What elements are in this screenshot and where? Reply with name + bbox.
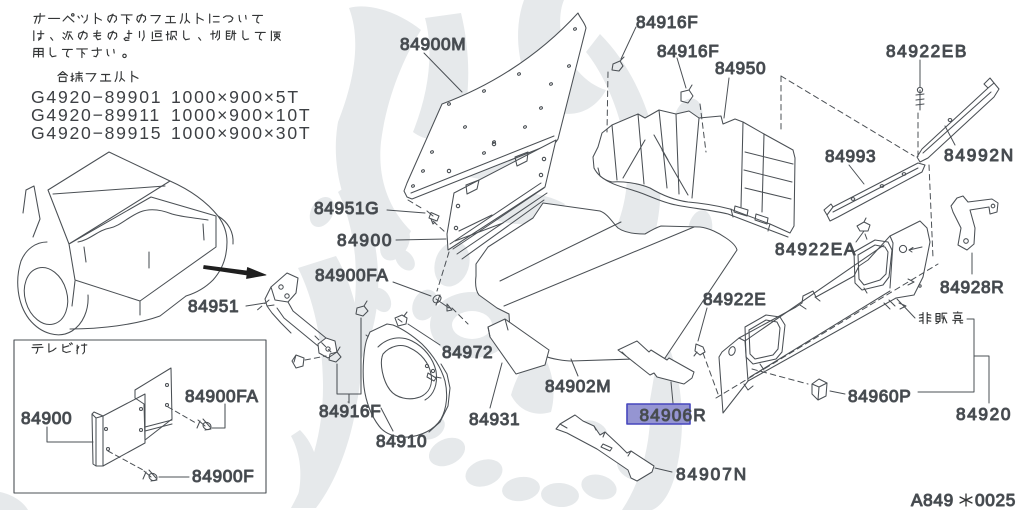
svg-text:84972: 84972: [442, 342, 493, 362]
svg-text:84900: 84900: [21, 408, 72, 428]
svg-text:84950: 84950: [715, 58, 766, 78]
svg-text:84916F: 84916F: [657, 41, 720, 61]
svg-text:84906R: 84906R: [640, 405, 707, 425]
svg-text:1000×900×10T: 1000×900×10T: [171, 105, 311, 125]
svg-text:84993: 84993: [825, 146, 876, 166]
svg-text:84960P: 84960P: [848, 386, 911, 406]
svg-text:84900F: 84900F: [192, 466, 255, 486]
svg-text:1000×900×5T: 1000×900×5T: [171, 87, 300, 107]
svg-text:84951: 84951: [188, 296, 239, 316]
svg-text:84910: 84910: [376, 431, 427, 451]
svg-text:84900: 84900: [337, 230, 393, 250]
svg-text:84922EB: 84922EB: [886, 41, 968, 61]
svg-text:G4920−89901: G4920−89901: [31, 87, 162, 107]
svg-text:84922E: 84922E: [703, 289, 766, 309]
svg-text:84992N: 84992N: [944, 145, 1015, 165]
svg-text:84916F: 84916F: [636, 12, 699, 32]
svg-text:84902M: 84902M: [545, 376, 611, 396]
svg-text:84931: 84931: [469, 409, 520, 429]
svg-text:84916F: 84916F: [319, 401, 382, 421]
svg-text:84900FA: 84900FA: [185, 386, 259, 406]
svg-text:G4920−89911: G4920−89911: [31, 105, 161, 125]
svg-text:A849: A849: [911, 490, 954, 510]
svg-text:84951G: 84951G: [314, 198, 379, 218]
svg-text:G4920−89915: G4920−89915: [31, 123, 162, 143]
svg-text:84922EA: 84922EA: [775, 239, 857, 259]
svg-text:84900FA: 84900FA: [315, 265, 389, 285]
svg-text:0025: 0025: [975, 490, 1016, 510]
svg-text:84928R: 84928R: [940, 277, 1004, 297]
svg-text:84900M: 84900M: [400, 34, 466, 54]
svg-text:84907N: 84907N: [676, 464, 748, 484]
svg-text:84920: 84920: [956, 404, 1012, 424]
svg-text:1000×900×30T: 1000×900×30T: [171, 123, 311, 143]
